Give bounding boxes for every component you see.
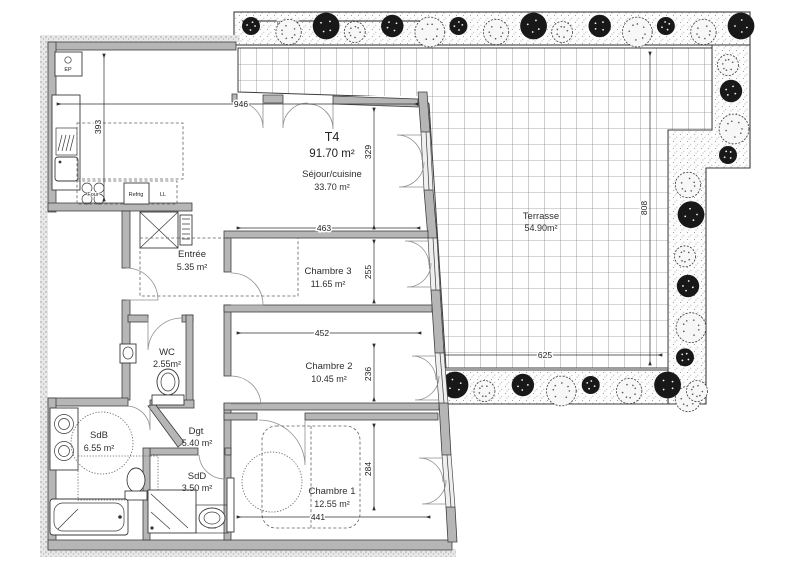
dim-808: 808 <box>639 201 649 215</box>
plant-light-icon <box>687 381 708 402</box>
plan-type-label: T4 <box>325 130 340 144</box>
wall-ch3-bottom <box>224 305 432 312</box>
room-label-dgt: Dgt <box>189 426 204 437</box>
wall-top <box>48 42 236 50</box>
plant-dark-icon <box>719 146 737 164</box>
plant-light-icon <box>276 19 301 44</box>
room-area-wc: 2.55m² <box>153 359 181 369</box>
ep-label: EP <box>64 67 72 73</box>
sdd-basin <box>199 508 225 528</box>
bathtub <box>50 499 128 535</box>
plant-dark-icon <box>512 374 534 396</box>
floor-plan-canvas: pare-vue Terrasse 54.90m² 625 808 <box>0 0 800 566</box>
plant-dark-icon <box>242 17 260 35</box>
bathtub-faucet-icon <box>118 515 122 519</box>
plant-dark-icon <box>313 13 340 40</box>
kitchen-sink <box>55 157 78 181</box>
room-label-sdb: SdB <box>90 430 108 441</box>
sejour-north-wall-b <box>263 95 283 103</box>
shower-drain-icon <box>150 526 153 529</box>
plant-dark-icon <box>520 13 547 40</box>
facade-wall-5 <box>446 507 457 542</box>
plant-dark-icon <box>677 275 699 297</box>
exterior-hatch-top <box>40 35 240 42</box>
room-label-wc: WC <box>159 347 175 358</box>
plant-light-icon <box>719 114 749 144</box>
plant-dark-icon <box>589 15 611 37</box>
plant-light-icon <box>483 19 508 44</box>
dim-255: 255 <box>363 265 373 279</box>
dim-329: 329 <box>363 145 373 159</box>
plant-light-icon <box>675 172 700 197</box>
wall-ch1-top-b <box>305 413 438 420</box>
plant-light-icon <box>616 378 641 403</box>
dim-946: 946 <box>234 99 248 109</box>
room-area-sdb: 6.55 m² <box>84 443 115 453</box>
ll-label: LL <box>160 192 166 198</box>
room-label-terrasse: Terrasse <box>523 211 559 222</box>
duct-small <box>180 215 192 245</box>
room-area-terrasse: 54.90m² <box>524 223 557 233</box>
room-area-entree: 5.35 m² <box>177 262 208 272</box>
plant-dark-icon <box>720 80 742 102</box>
apartment: EP Four Refrig LL <box>40 35 457 557</box>
plant-dark-icon <box>676 348 694 366</box>
wall-wc-east <box>186 315 193 405</box>
plant-dark-icon <box>657 17 675 35</box>
wall-spine-a <box>224 238 231 272</box>
sdd-cabinet <box>227 478 234 532</box>
wall-bottom <box>48 540 452 550</box>
refrig-label: Refrig <box>129 192 144 198</box>
dim-625: 625 <box>538 350 552 360</box>
dim-284: 284 <box>363 462 373 476</box>
room-area-chambre2: 10.45 m² <box>311 374 347 384</box>
room-area-chambre3: 11.65 m² <box>311 279 346 289</box>
plant-light-icon <box>718 55 739 76</box>
dim-236: 236 <box>363 367 373 381</box>
room-label-entree: Entrée <box>178 249 206 260</box>
plant-light-icon <box>415 17 445 47</box>
plan-area-label: 91.70 m² <box>309 148 355 160</box>
wall-sdb-step <box>48 398 128 406</box>
wc-toilet-tank <box>152 395 184 405</box>
plant-dark-icon <box>381 15 403 37</box>
apartment-floor <box>52 46 450 542</box>
dim-393: 393 <box>93 120 103 134</box>
room-label-chambre1: Chambre 1 <box>309 486 356 497</box>
plant-dark-icon <box>678 201 705 228</box>
wall-sdd-top-b <box>225 448 231 455</box>
wall-wc-top-a <box>128 315 148 322</box>
four-label: Four <box>87 192 98 198</box>
plant-dark-icon <box>654 372 681 399</box>
room-area-chambre1: 12.55 m² <box>314 499 350 509</box>
wall-ch1-top-a <box>224 413 257 420</box>
dim-452: 452 <box>315 328 329 338</box>
plant-light-icon <box>676 313 706 343</box>
dim-463: 463 <box>317 223 331 233</box>
wall-left-mid-a <box>122 211 130 268</box>
plant-light-icon <box>344 22 365 43</box>
plant-light-icon <box>552 22 573 43</box>
wall-kitchen-bottom <box>48 203 192 211</box>
plant-light-icon <box>622 17 652 47</box>
room-area-dgt: 5.40 m² <box>182 438 213 448</box>
room-area-sdd: 3.50 m² <box>182 483 213 493</box>
sdb-toilet-bowl <box>127 468 145 492</box>
plant-dark-icon <box>449 17 467 35</box>
exterior-hatch-left <box>40 35 48 552</box>
wall-spine-b <box>224 305 231 376</box>
floor-plan-page: pare-vue Terrasse 54.90m² 625 808 <box>0 0 800 566</box>
dim-441: 441 <box>311 512 325 522</box>
wall-sdd-top-a <box>150 448 198 455</box>
sdb-toilet-tank <box>125 491 147 500</box>
plant-light-icon <box>474 381 495 402</box>
room-area-sejour: 33.70 m² <box>314 182 350 192</box>
room-label-sejour: Séjour/cuisine <box>302 169 362 180</box>
room-label-chambre3: Chambre 3 <box>305 266 352 277</box>
plant-light-icon <box>675 246 696 267</box>
room-label-chambre2: Chambre 2 <box>306 361 353 372</box>
plant-light-icon <box>546 376 576 406</box>
shower <box>148 490 196 533</box>
plant-dark-icon <box>582 376 600 394</box>
room-label-sdd: SdD <box>188 471 207 482</box>
plant-light-icon <box>691 19 716 44</box>
faucet-icon <box>59 161 62 164</box>
plant-dark-icon <box>728 13 755 40</box>
